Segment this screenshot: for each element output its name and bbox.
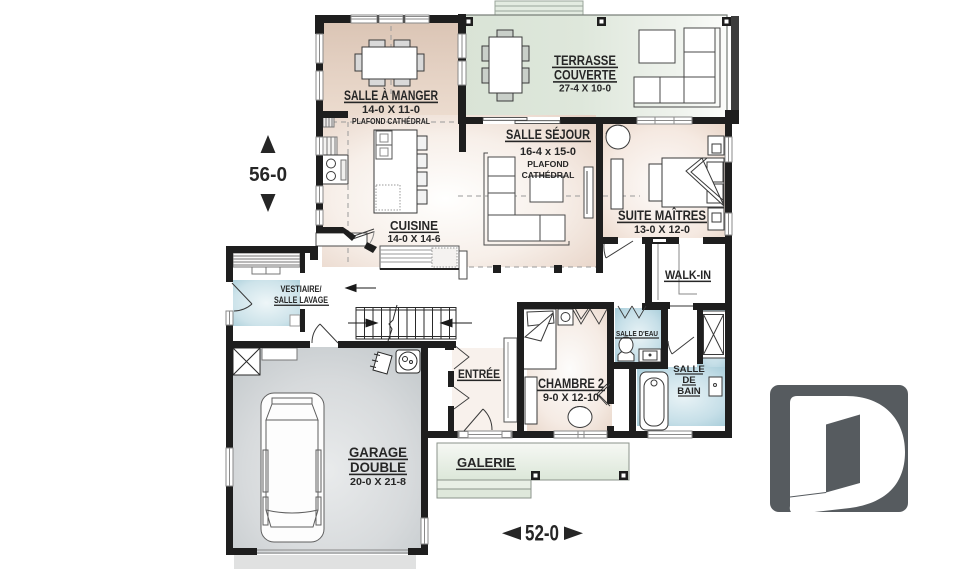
svg-text:16-4 x 15-0: 16-4 x 15-0 (520, 146, 576, 158)
svg-text:DOUBLE: DOUBLE (350, 460, 406, 475)
svg-text:56-0: 56-0 (249, 164, 287, 186)
svg-text:13-0 X 12-0: 13-0 X 12-0 (634, 224, 690, 236)
svg-text:CATHÉDRAL: CATHÉDRAL (522, 170, 575, 180)
svg-text:SALLE: SALLE (673, 364, 705, 375)
svg-text:TERRASSE: TERRASSE (554, 53, 616, 68)
svg-text:COUVERTE: COUVERTE (554, 68, 616, 83)
svg-text:GARAGE: GARAGE (349, 445, 407, 460)
svg-text:52-0: 52-0 (525, 521, 559, 546)
svg-text:SALLE LAVAGE: SALLE LAVAGE (274, 295, 328, 305)
svg-text:PLAFOND CATHÉDRAL: PLAFOND CATHÉDRAL (352, 116, 430, 126)
svg-text:ENTRÉE: ENTRÉE (458, 368, 500, 381)
svg-text:BAIN: BAIN (677, 386, 701, 397)
svg-text:CUISINE: CUISINE (390, 219, 438, 233)
svg-text:PLAFOND: PLAFOND (527, 159, 569, 169)
svg-text:SUITE MAÎTRES: SUITE MAÎTRES (618, 208, 706, 223)
svg-text:14-0 X 14-6: 14-0 X 14-6 (388, 233, 441, 245)
svg-text:VESTIAIRE/: VESTIAIRE/ (281, 284, 322, 294)
svg-text:14-0 X 11-0: 14-0 X 11-0 (362, 104, 420, 116)
svg-text:SALLE SÉJOUR: SALLE SÉJOUR (506, 127, 590, 142)
svg-text:SALLE D'EAU: SALLE D'EAU (616, 329, 658, 338)
svg-text:CHAMBRE 2: CHAMBRE 2 (538, 376, 604, 391)
svg-text:SALLE À MANGER: SALLE À MANGER (344, 88, 438, 103)
svg-text:20-0 X 21-8: 20-0 X 21-8 (350, 476, 406, 488)
svg-text:GALERIE: GALERIE (457, 456, 515, 470)
svg-text:DE: DE (682, 375, 696, 386)
svg-text:27-4 X 10-0: 27-4 X 10-0 (559, 83, 611, 95)
svg-text:9-0 X 12-10: 9-0 X 12-10 (543, 392, 599, 404)
svg-text:WALK-IN: WALK-IN (665, 270, 711, 282)
